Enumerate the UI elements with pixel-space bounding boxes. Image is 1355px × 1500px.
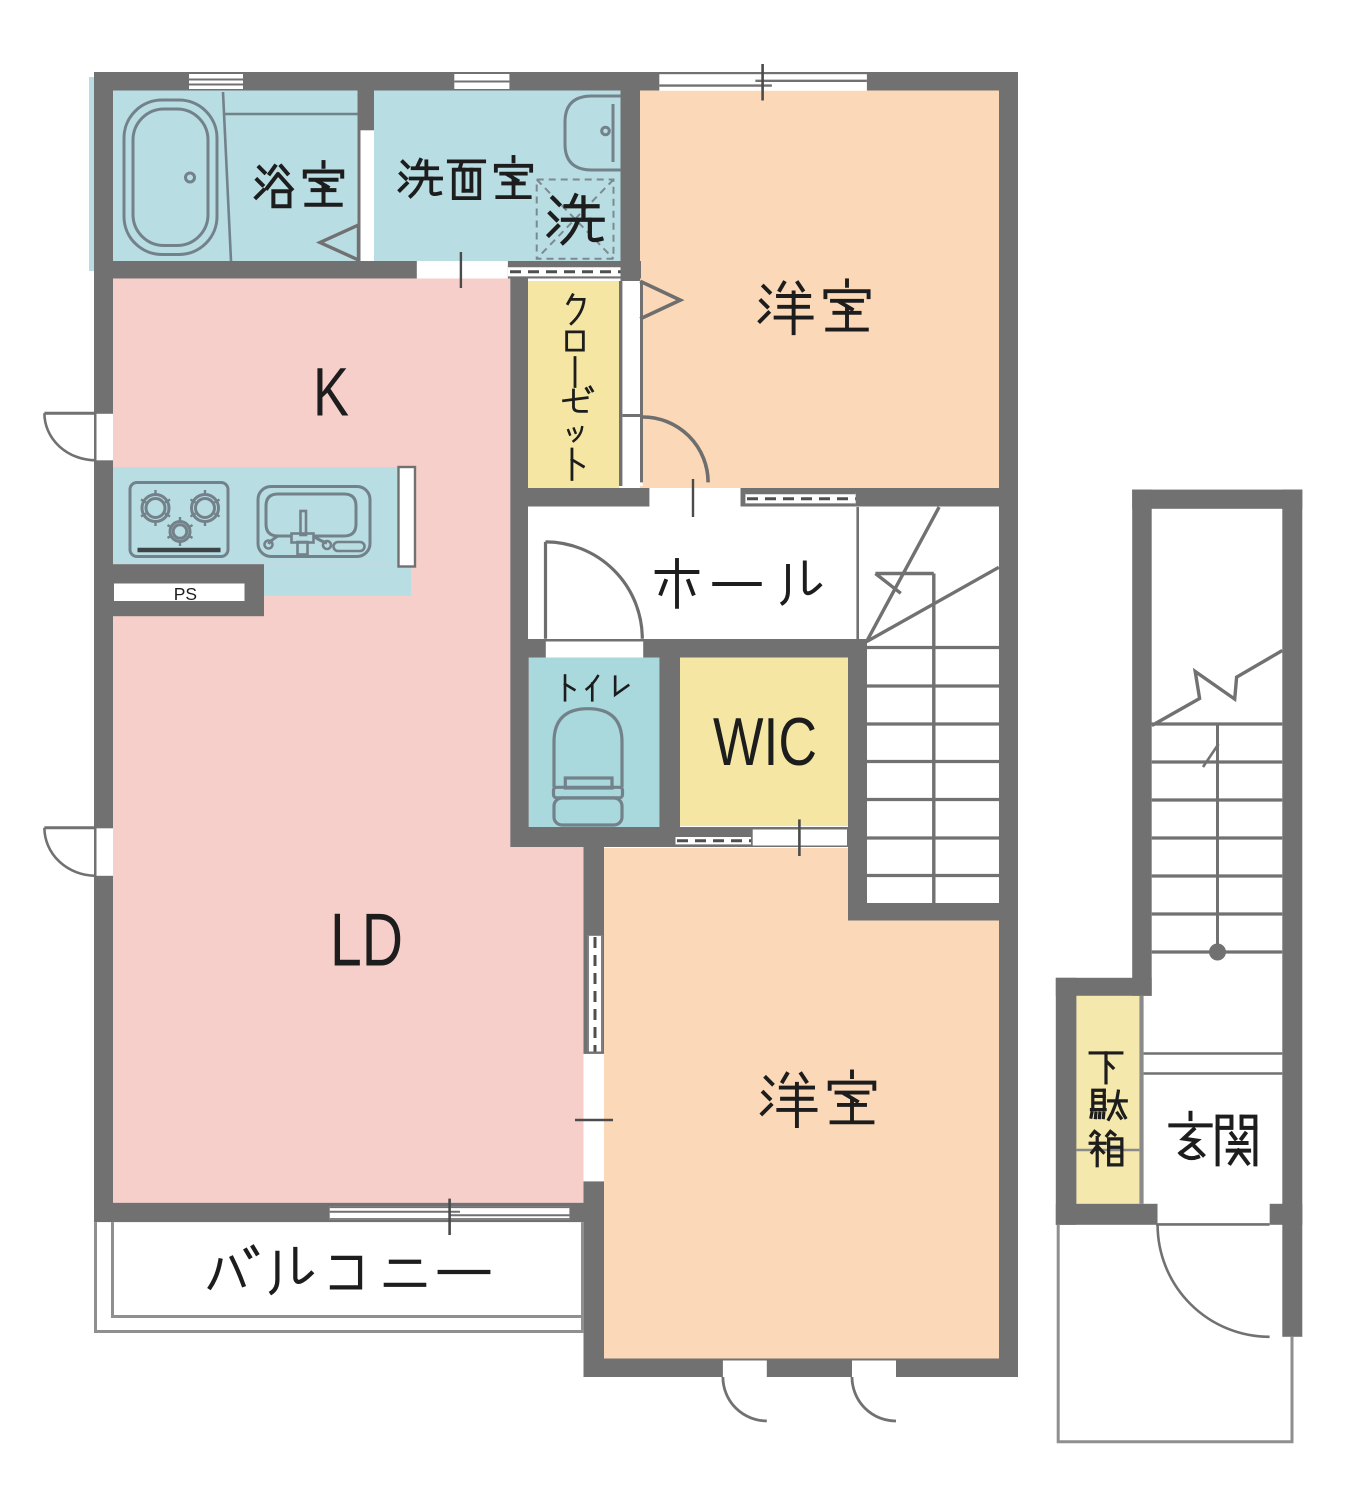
svg-text:K: K bbox=[313, 354, 349, 431]
svg-text:WIC: WIC bbox=[713, 704, 817, 780]
svg-text:PS: PS bbox=[174, 584, 197, 604]
svg-text:LD: LD bbox=[330, 898, 403, 982]
